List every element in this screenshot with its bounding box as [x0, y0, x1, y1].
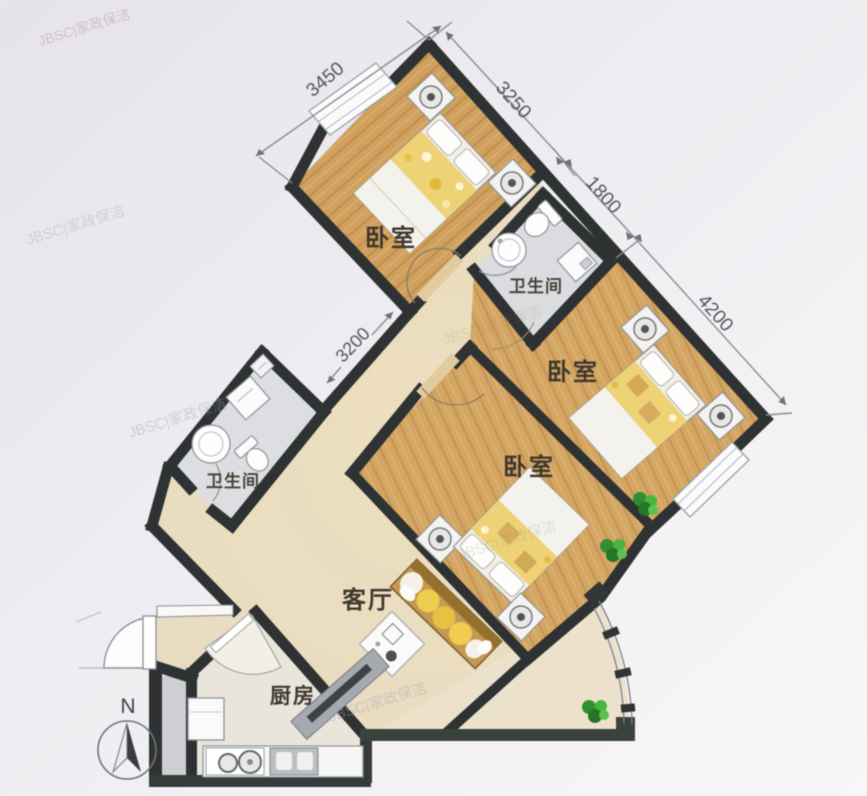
svg-text:N: N: [120, 695, 135, 718]
svg-text:卧室: 卧室: [503, 453, 555, 481]
svg-text:卫生间: 卫生间: [509, 276, 563, 296]
svg-text:卧室: 卧室: [365, 224, 417, 252]
svg-text:厨房: 厨房: [270, 684, 316, 708]
svg-text:卧室: 卧室: [547, 358, 599, 386]
svg-text:卫生间: 卫生间: [206, 471, 260, 491]
svg-text:客厅: 客厅: [342, 586, 394, 614]
